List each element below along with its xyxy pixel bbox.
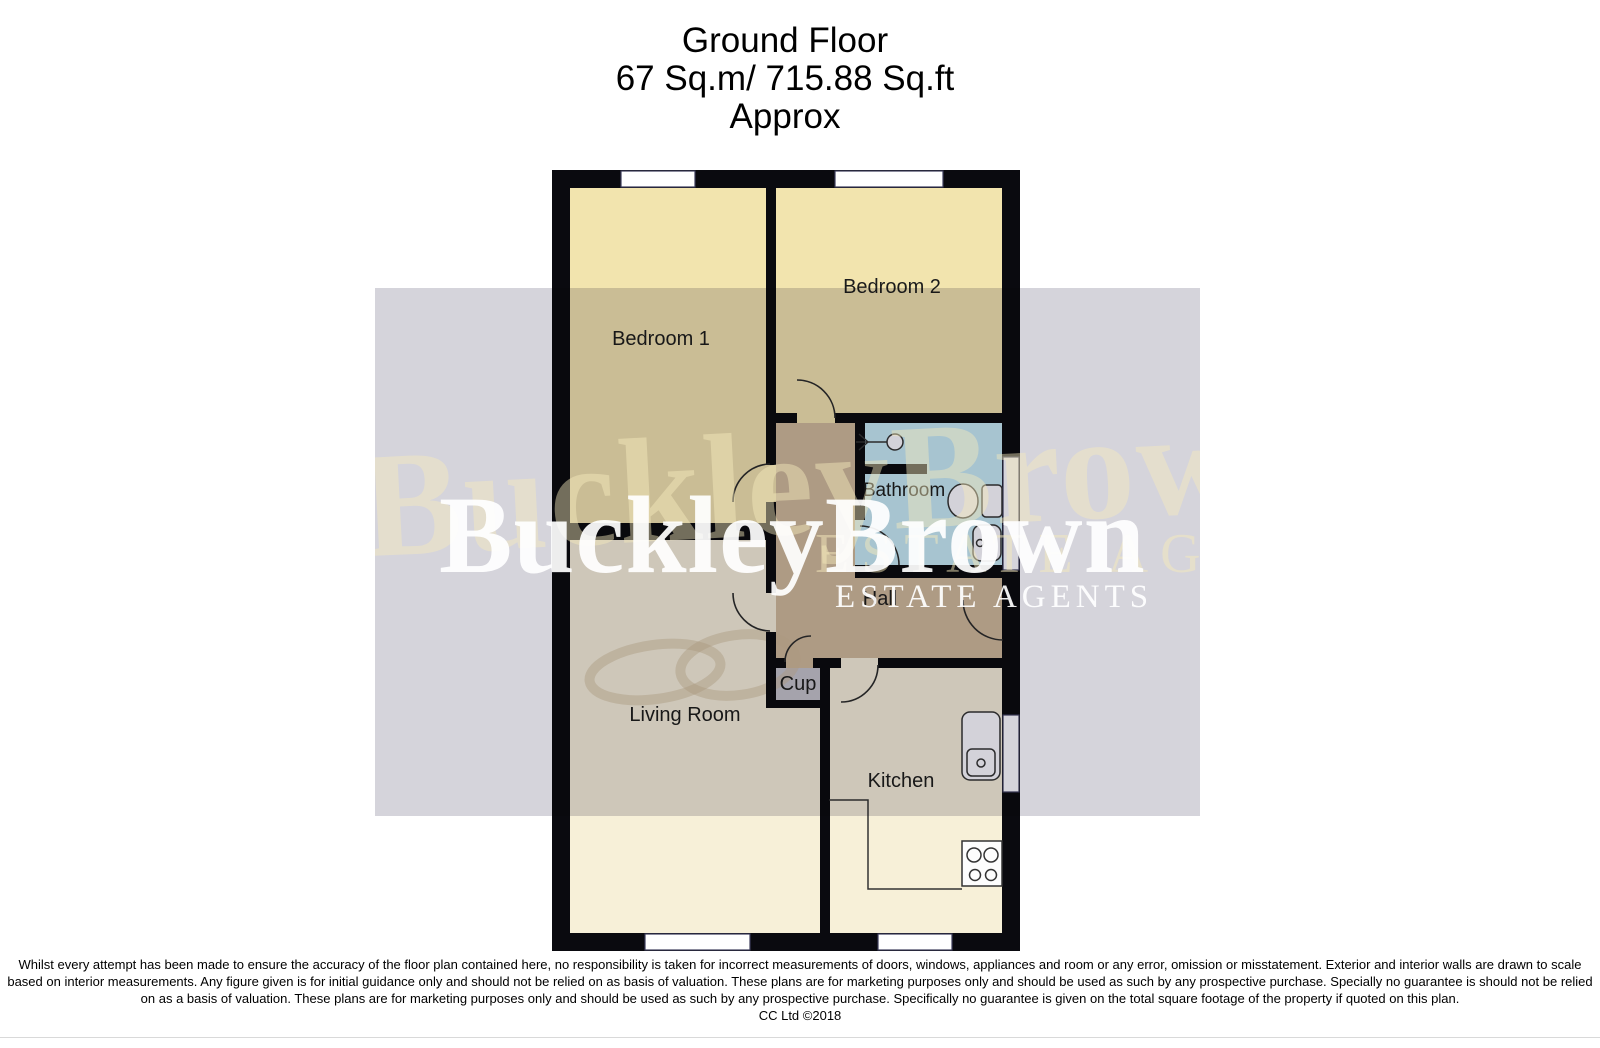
disclaimer-line1: Whilst every attempt has been made to en… [0,956,1600,973]
window-kitchen-bottom [878,934,952,950]
disclaimer-line3: on as a basis of valuation. These plans … [0,990,1600,1007]
watermark-band [375,288,1200,816]
bottom-divider [0,1037,1600,1038]
disclaimer: Whilst every attempt has been made to en… [0,956,1600,1024]
disclaimer-line2: based on interior measurements. Any figu… [0,973,1600,990]
window-bedroom2 [835,171,943,187]
floorplan-page: Ground Floor 67 Sq.m/ 715.88 Sq.ft Appro… [0,0,1600,1048]
disclaimer-copyright: CC Ltd ©2018 [0,1007,1600,1024]
window-living [645,934,750,950]
hob-icon [962,841,1002,886]
window-bedroom1 [621,171,695,187]
